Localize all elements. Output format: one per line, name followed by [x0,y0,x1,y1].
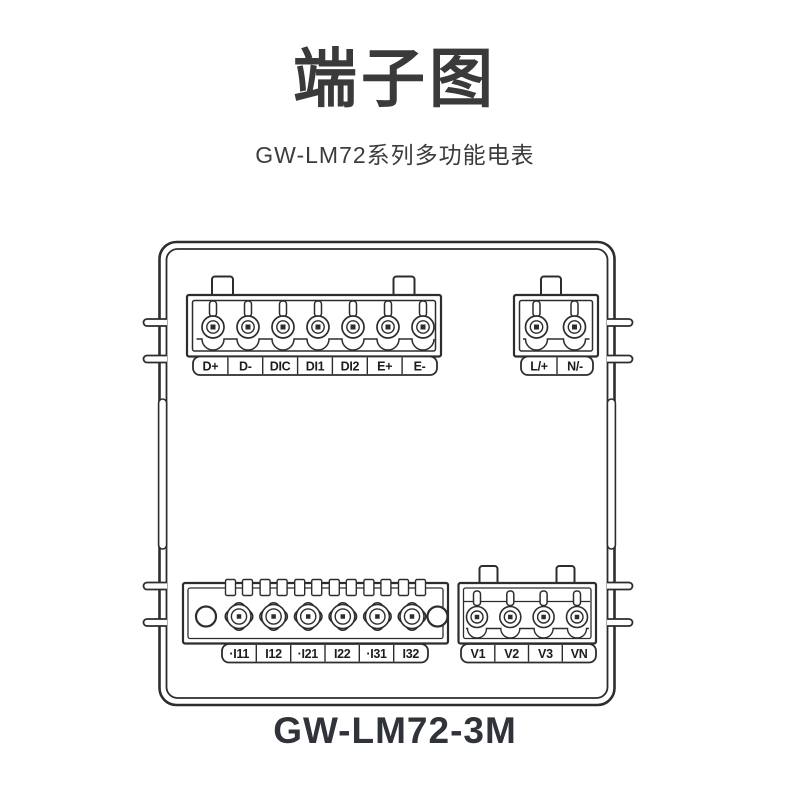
terminal-label: I22 [334,647,351,661]
terminal-label: N/- [567,360,583,374]
terminal-label: I32 [403,647,420,661]
right-side-seam [607,399,615,549]
terminal-label: E+ [377,360,392,374]
comm-label-strip: D+ D- DIC DI1 DI2 E+ E- [193,357,437,376]
terminal-label: L/+ [530,360,548,374]
terminal-label: DI2 [341,360,360,374]
terminal-label: I12 [265,647,282,661]
terminal-label: DI1 [306,360,325,374]
terminal-label: ·I11 [229,647,249,661]
terminal-label: V3 [538,647,553,661]
screw-hole [428,607,448,627]
terminal-label: D+ [203,360,219,374]
page: 端子图 GW-LM72系列多功能电表 [0,0,790,790]
terminal-diagram: D+ D- DIC DI1 DI2 E+ E- L/+ N/- [0,0,790,790]
model-label: GW-LM72-3M [0,710,790,752]
voltage-label-strip: V1 V2 V3 VN [461,644,596,663]
terminal-label: D- [239,360,252,374]
terminal-label: E- [414,360,426,374]
current-label-strip: ·I11 I12 ·I21 I22 ·I31 I32 [222,644,428,663]
terminal-label: ·I31 [366,647,387,661]
terminal-label: V1 [471,647,486,661]
screw-hole [196,607,216,627]
terminal-label: DIC [270,360,291,374]
left-side-seam [159,399,167,549]
terminal-label: VN [571,647,588,661]
current-terminal-block: ·I11 I12 ·I21 I22 ·I31 I32 [183,580,448,663]
power-label-strip: L/+ N/- [521,357,593,376]
terminal-label: ·I21 [298,647,319,661]
terminal-label: V2 [504,647,519,661]
